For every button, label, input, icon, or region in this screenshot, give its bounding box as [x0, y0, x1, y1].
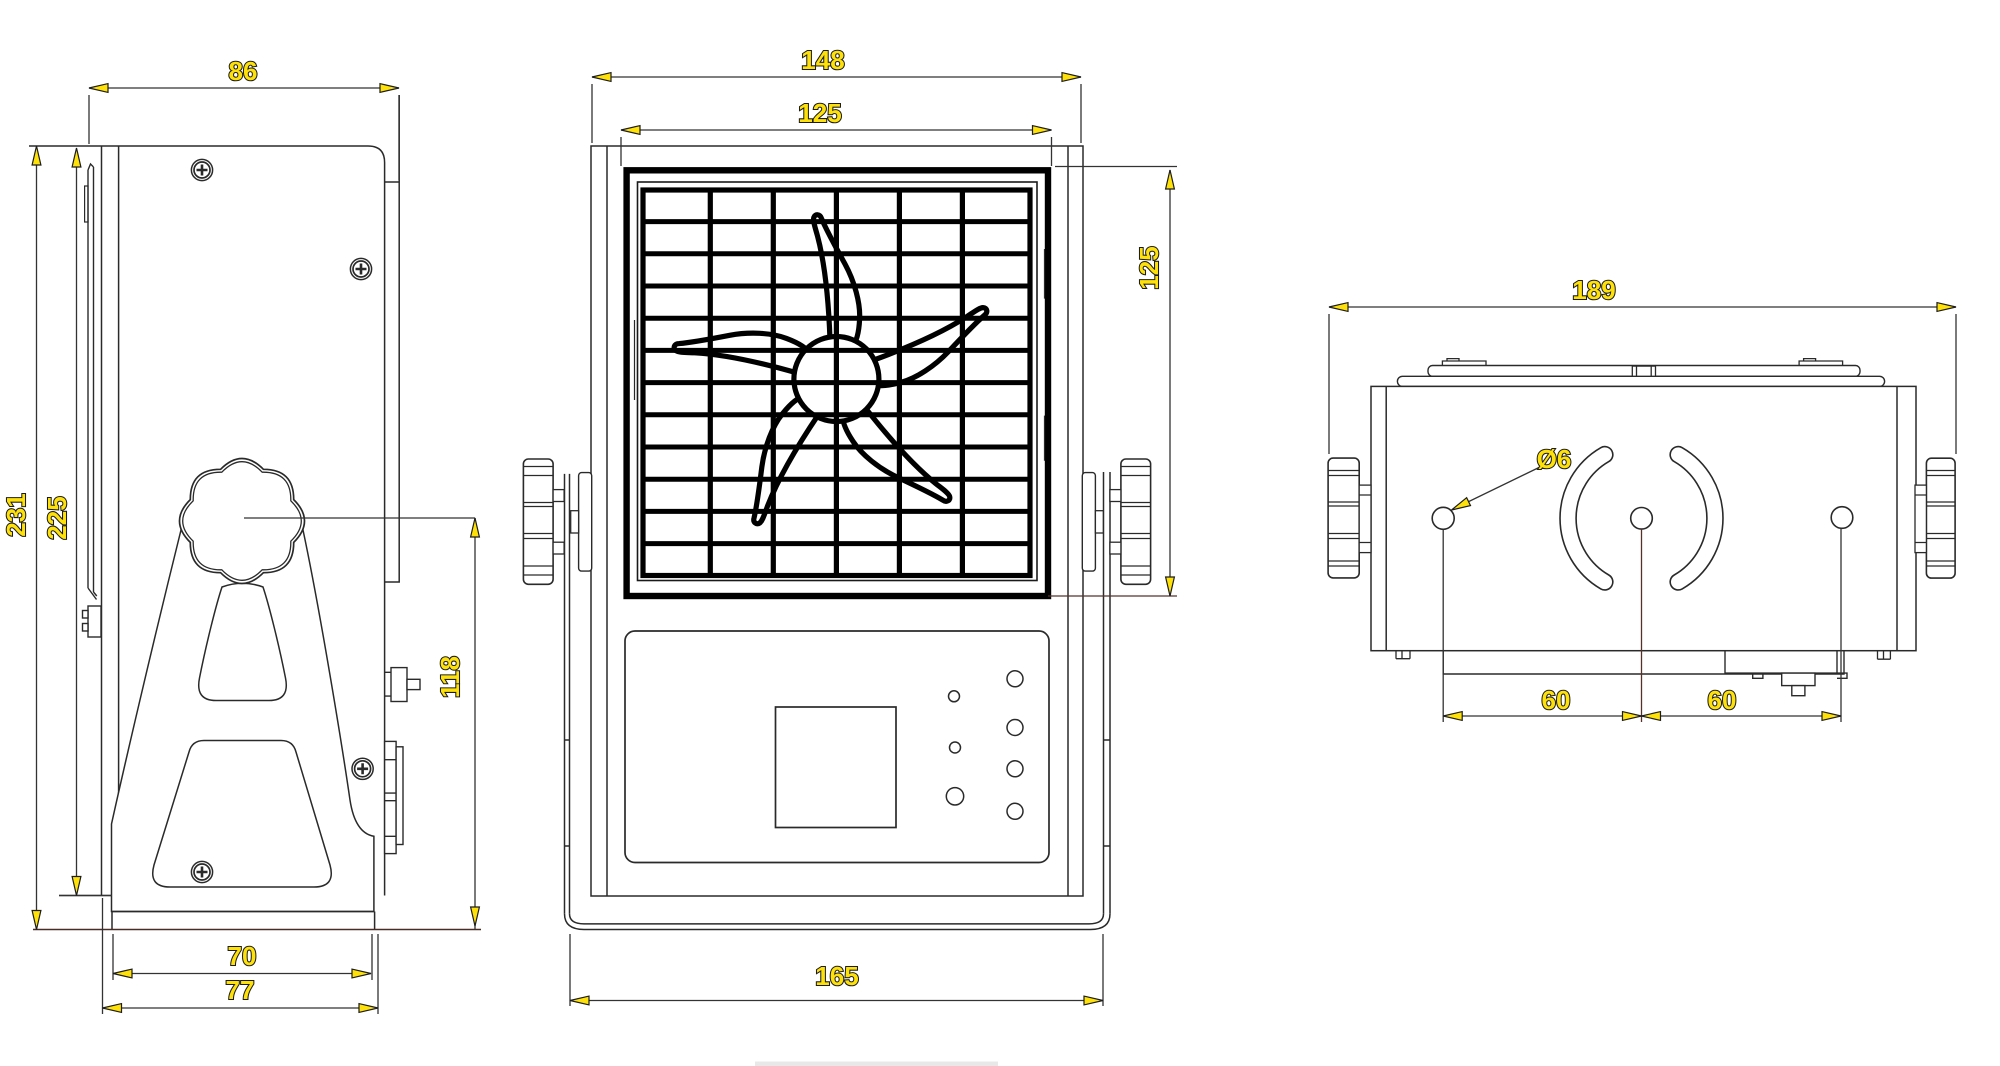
svg-text:125: 125 [798, 98, 841, 128]
svg-text:77: 77 [226, 975, 255, 1005]
svg-text:225: 225 [42, 496, 72, 539]
svg-text:60: 60 [1708, 685, 1737, 715]
svg-text:118: 118 [435, 656, 465, 698]
svg-text:70: 70 [228, 941, 257, 971]
svg-text:165: 165 [815, 961, 858, 991]
svg-text:60: 60 [1542, 685, 1571, 715]
svg-text:125: 125 [1134, 246, 1164, 289]
svg-text:Ø6: Ø6 [1537, 444, 1572, 474]
svg-text:189: 189 [1572, 275, 1615, 305]
svg-text:86: 86 [229, 56, 258, 86]
svg-text:231: 231 [1, 493, 31, 536]
svg-text:148: 148 [801, 45, 844, 75]
